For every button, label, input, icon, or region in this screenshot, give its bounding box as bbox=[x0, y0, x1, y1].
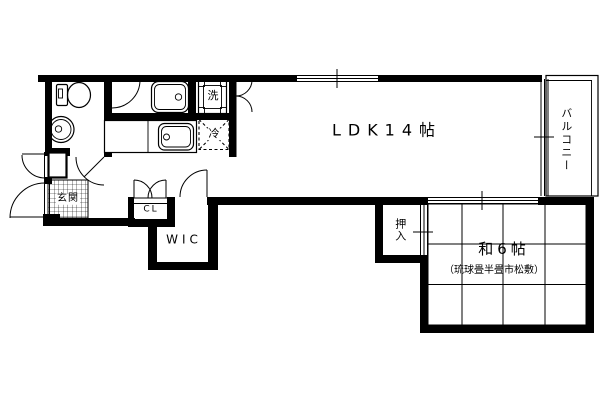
wall-top-right bbox=[378, 75, 542, 82]
entrance-door-lower bbox=[10, 183, 45, 218]
washer-label: 洗 bbox=[207, 90, 220, 102]
toilet-icon bbox=[57, 83, 91, 108]
balcony-label: バルコニー bbox=[560, 108, 572, 173]
cl-label: CL bbox=[142, 205, 159, 214]
sliding-door-washitsu bbox=[428, 191, 538, 210]
window-ldk-top bbox=[297, 69, 378, 88]
wall-washitsu-left bbox=[420, 262, 428, 333]
wall-cl-right bbox=[167, 197, 175, 222]
fridge-label: 冷 bbox=[208, 128, 221, 140]
cl-double-doors bbox=[134, 180, 166, 198]
wall-oshiire-bottom bbox=[375, 255, 428, 263]
wall-south-mid bbox=[207, 197, 428, 205]
washroom-folding-door bbox=[236, 80, 252, 112]
wall-washitsu-bottom bbox=[420, 325, 594, 333]
openings bbox=[45, 69, 555, 255]
kitchen-counter-icon bbox=[105, 121, 197, 153]
cl-opening bbox=[134, 198, 167, 204]
bathtub-icon bbox=[152, 82, 189, 113]
genkan-label: 玄関 bbox=[56, 194, 80, 205]
wall-washitsu-right bbox=[586, 197, 594, 333]
wall-kitchen-right bbox=[229, 113, 237, 157]
washitsu-note: （琉球畳半畳市松敷） bbox=[444, 266, 544, 277]
wall-south-west bbox=[43, 218, 135, 226]
floorplan-drawing bbox=[0, 0, 600, 400]
oshiire-label: 押入 bbox=[394, 218, 406, 242]
wall-oshiire-left bbox=[375, 197, 383, 263]
wall-wic-right bbox=[208, 197, 218, 263]
wall-bath-washer bbox=[188, 78, 196, 115]
washitsu-label: 和6帖 bbox=[478, 242, 530, 258]
wall-washer-right bbox=[229, 75, 237, 115]
ldk-label: LDK14帖 bbox=[332, 123, 442, 140]
fusuma-oshiire bbox=[413, 205, 433, 255]
wall-left bbox=[45, 75, 52, 152]
floorplan: LDK14帖 和6帖 （琉球畳半畳市松敷） バルコニー 押入 WIC CL 玄関… bbox=[0, 0, 600, 400]
wic-label: WIC bbox=[166, 234, 202, 247]
shoe-cabinet-icon bbox=[49, 153, 67, 178]
wall-wic-bottom bbox=[148, 262, 218, 270]
bath-door bbox=[112, 80, 140, 108]
wic-door bbox=[180, 170, 207, 197]
entrance-door-upper bbox=[22, 154, 45, 178]
sliding-door-balcony bbox=[534, 79, 554, 197]
